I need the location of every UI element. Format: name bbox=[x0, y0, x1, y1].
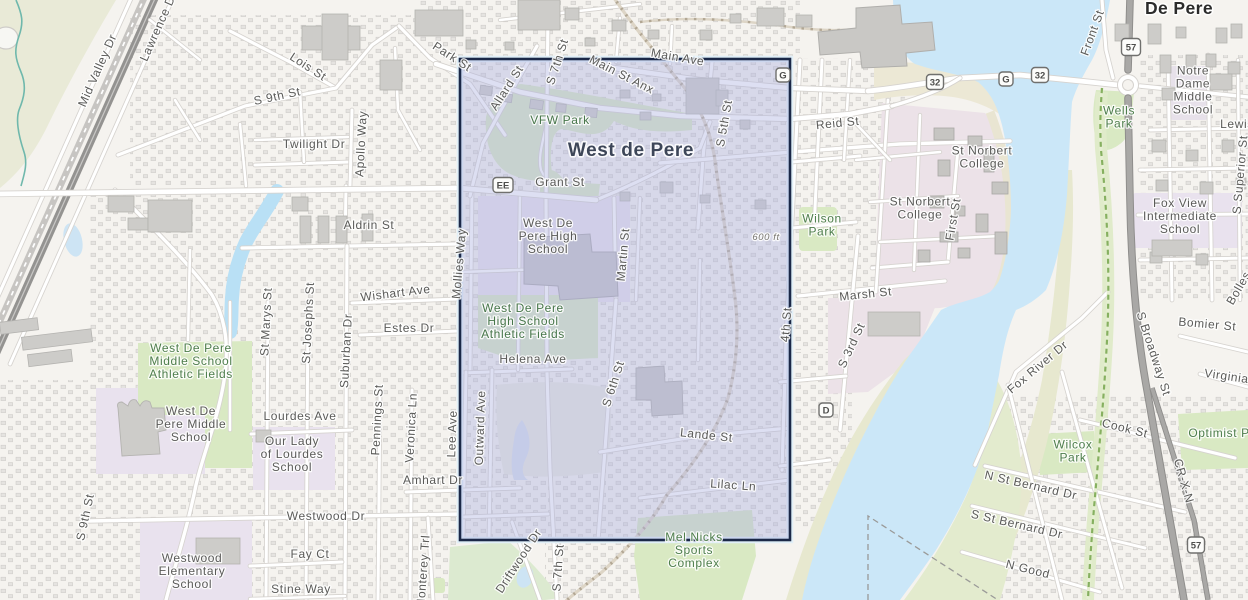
svg-text:Stine Way: Stine Way bbox=[271, 582, 331, 596]
svg-text:of Lourdes: of Lourdes bbox=[261, 447, 324, 461]
svg-text:57: 57 bbox=[1126, 42, 1137, 53]
svg-text:Intermediate: Intermediate bbox=[1143, 209, 1217, 223]
svg-text:Our Lady: Our Lady bbox=[265, 434, 319, 448]
svg-text:EE: EE bbox=[497, 180, 510, 191]
svg-text:VFW Park: VFW Park bbox=[530, 113, 590, 127]
svg-text:Sports: Sports bbox=[675, 543, 713, 557]
svg-text:Aldrin St: Aldrin St bbox=[344, 218, 395, 232]
svg-text:Westwood Dr: Westwood Dr bbox=[287, 509, 365, 523]
svg-text:Wells: Wells bbox=[1103, 104, 1135, 118]
svg-text:West De: West De bbox=[166, 404, 216, 418]
svg-text:Fox View: Fox View bbox=[1153, 196, 1207, 210]
svg-text:Amhart Dr: Amhart Dr bbox=[403, 473, 463, 487]
svg-text:Complex: Complex bbox=[668, 556, 720, 570]
svg-text:Lee Ave: Lee Ave bbox=[444, 410, 460, 458]
svg-text:St Norbert: St Norbert bbox=[890, 195, 951, 209]
svg-text:D: D bbox=[823, 405, 830, 416]
svg-text:Lewis: Lewis bbox=[1220, 117, 1248, 131]
svg-text:G: G bbox=[1002, 74, 1009, 85]
svg-text:32: 32 bbox=[1035, 70, 1046, 81]
svg-text:Elementary: Elementary bbox=[159, 564, 226, 578]
svg-text:Lourdes Ave: Lourdes Ave bbox=[263, 409, 336, 423]
svg-text:Athletic Fields: Athletic Fields bbox=[481, 327, 565, 341]
svg-text:Middle: Middle bbox=[1174, 90, 1213, 104]
svg-text:West de Pere: West de Pere bbox=[568, 140, 694, 161]
svg-text:57: 57 bbox=[1191, 540, 1202, 551]
svg-text:School: School bbox=[1173, 103, 1213, 117]
svg-text:Dame: Dame bbox=[1176, 77, 1210, 91]
svg-text:Pere Middle: Pere Middle bbox=[156, 417, 227, 431]
svg-text:Notre: Notre bbox=[1177, 64, 1209, 78]
svg-text:Wilcox: Wilcox bbox=[1054, 438, 1093, 452]
svg-text:West De: West De bbox=[523, 216, 573, 230]
svg-text:Athletic Fields: Athletic Fields bbox=[149, 367, 233, 381]
svg-text:High School: High School bbox=[487, 314, 558, 328]
svg-text:Park: Park bbox=[1059, 451, 1086, 465]
svg-text:School: School bbox=[171, 430, 211, 444]
svg-text:School: School bbox=[272, 460, 312, 474]
svg-text:G: G bbox=[779, 70, 786, 81]
svg-text:School: School bbox=[528, 242, 568, 256]
svg-text:Optimist P: Optimist P bbox=[1188, 426, 1248, 440]
svg-text:Wilson: Wilson bbox=[802, 212, 842, 226]
svg-text:Grant St: Grant St bbox=[535, 175, 585, 189]
svg-text:Helena Ave: Helena Ave bbox=[499, 352, 566, 366]
svg-text:Pere High: Pere High bbox=[519, 229, 578, 243]
svg-text:School: School bbox=[172, 577, 212, 591]
svg-text:Park: Park bbox=[1105, 117, 1132, 131]
svg-text:De Pere: De Pere bbox=[1145, 0, 1213, 18]
svg-text:St Norbert: St Norbert bbox=[952, 144, 1013, 158]
svg-text:College: College bbox=[898, 208, 943, 222]
svg-text:Twilight Dr: Twilight Dr bbox=[283, 137, 346, 151]
svg-text:Middle School: Middle School bbox=[149, 354, 232, 368]
svg-text:College: College bbox=[960, 157, 1005, 171]
svg-text:Park: Park bbox=[808, 225, 835, 239]
svg-text:Outward Ave: Outward Ave bbox=[472, 390, 489, 466]
svg-text:West De Pere: West De Pere bbox=[482, 301, 564, 315]
svg-text:Estes Dr: Estes Dr bbox=[384, 321, 435, 335]
svg-text:Westwood: Westwood bbox=[162, 551, 223, 565]
svg-text:32: 32 bbox=[930, 77, 941, 88]
svg-text:School: School bbox=[1160, 222, 1200, 236]
svg-text:Mel Nicks: Mel Nicks bbox=[665, 530, 722, 544]
svg-text:West De Pere: West De Pere bbox=[150, 341, 232, 355]
svg-text:Fay Ct: Fay Ct bbox=[291, 547, 330, 561]
svg-text:600 ft: 600 ft bbox=[752, 232, 779, 243]
